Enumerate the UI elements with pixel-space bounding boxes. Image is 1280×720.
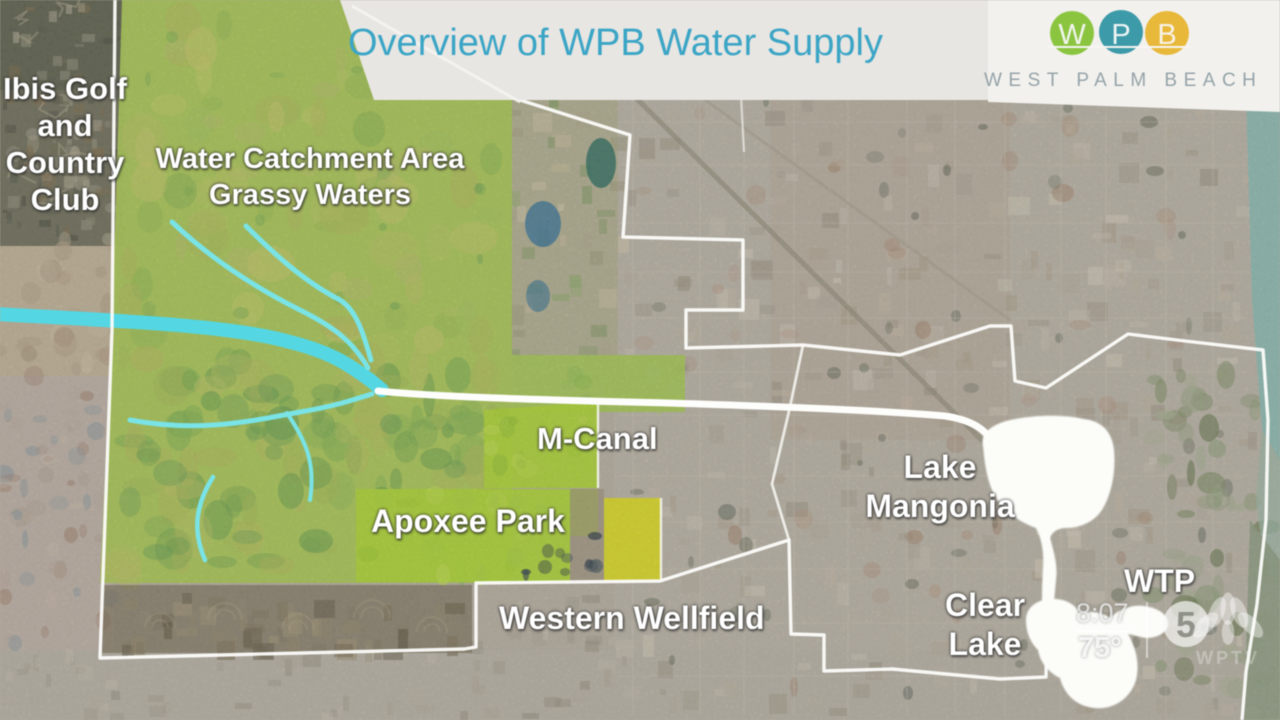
svg-text:WPTV: WPTV <box>1196 648 1260 668</box>
svg-text:W: W <box>1058 19 1086 51</box>
svg-text:P: P <box>1111 19 1130 51</box>
svg-text:5: 5 <box>1176 604 1196 645</box>
svg-text:B: B <box>1157 19 1176 51</box>
